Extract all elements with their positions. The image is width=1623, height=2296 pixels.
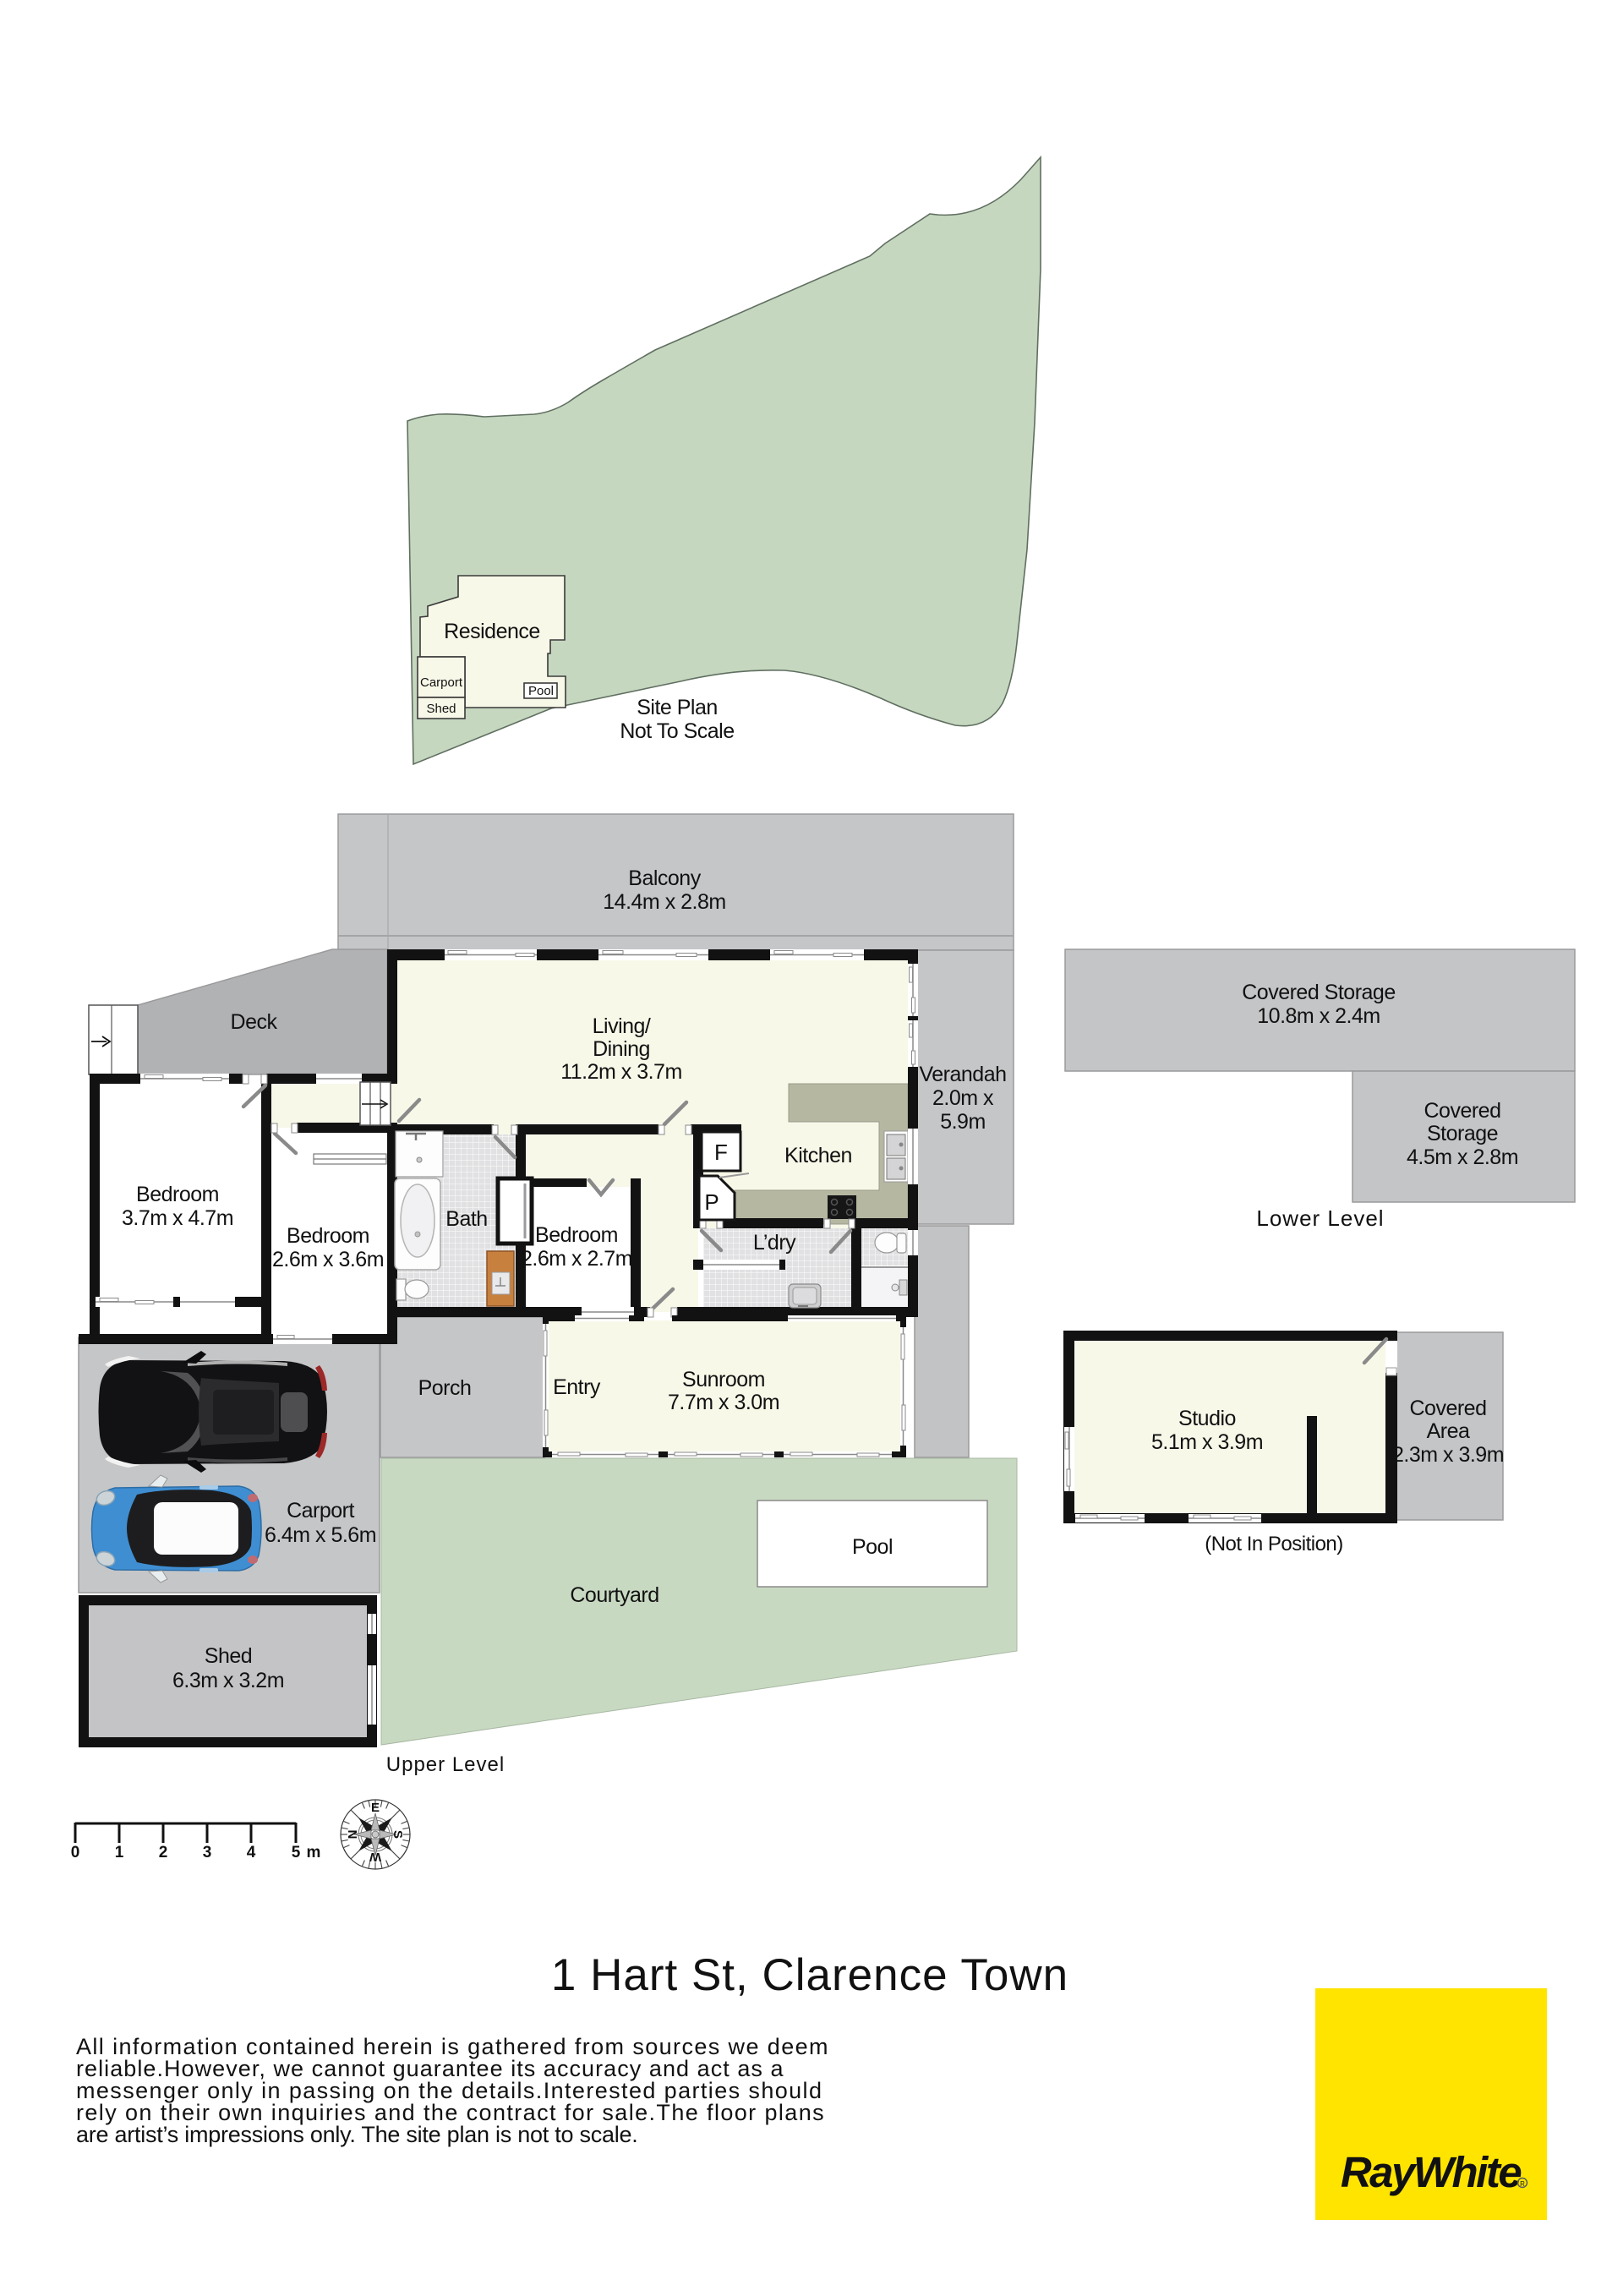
svg-text:E: E [371, 1801, 380, 1815]
svg-text:Storage: Storage [1427, 1122, 1498, 1145]
svg-text:14.4m x 2.8m: 14.4m x 2.8m [603, 890, 725, 914]
svg-text:N: N [346, 1830, 360, 1840]
svg-text:Dining: Dining [593, 1037, 650, 1061]
svg-text:(Not In Position): (Not In Position) [1205, 1533, 1343, 1555]
svg-text:2.0m x: 2.0m x [932, 1086, 994, 1110]
svg-text:Studio: Studio [1178, 1407, 1236, 1430]
svg-text:Sunroom: Sunroom [682, 1368, 765, 1391]
svg-text:2.6m x 3.6m: 2.6m x 3.6m [272, 1248, 384, 1271]
svg-text:Bedroom: Bedroom [287, 1224, 369, 1248]
svg-text:Carport: Carport [287, 1499, 354, 1522]
svg-text:Shed: Shed [205, 1644, 252, 1668]
svg-text:1: 1 [115, 1844, 124, 1861]
svg-text:5.9m: 5.9m [940, 1110, 986, 1134]
svg-text:F: F [714, 1140, 728, 1165]
svg-text:Pool: Pool [528, 684, 554, 698]
svg-text:Courtyard: Courtyard [570, 1583, 658, 1607]
svg-text:RayWhite: RayWhite [1341, 2148, 1522, 2196]
svg-text:0: 0 [71, 1844, 80, 1861]
svg-text:Porch: Porch [418, 1376, 472, 1400]
svg-text:Bedroom: Bedroom [136, 1183, 219, 1206]
svg-text:Bedroom: Bedroom [535, 1223, 618, 1247]
svg-text:3: 3 [203, 1844, 212, 1861]
svg-text:5: 5 [292, 1844, 301, 1861]
svg-text:Shed: Shed [426, 702, 456, 716]
svg-text:Bath: Bath [445, 1207, 487, 1231]
svg-text:L’dry: L’dry [753, 1231, 796, 1255]
svg-text:Balcony: Balcony [628, 866, 701, 890]
svg-text:m: m [307, 1844, 321, 1861]
svg-text:4: 4 [247, 1844, 256, 1861]
svg-text:2.3m x 3.9m: 2.3m x 3.9m [1392, 1443, 1504, 1467]
svg-text:Upper Level: Upper Level [386, 1753, 505, 1776]
svg-text:Entry: Entry [553, 1375, 601, 1399]
svg-text:11.2m x 3.7m: 11.2m x 3.7m [560, 1060, 682, 1084]
svg-text:Kitchen: Kitchen [784, 1144, 852, 1167]
svg-text:Not To Scale: Not To Scale [620, 719, 734, 743]
svg-text:Pool: Pool [852, 1535, 893, 1559]
svg-text:2.6m x 2.7m: 2.6m x 2.7m [521, 1247, 632, 1271]
svg-text:Area: Area [1427, 1419, 1470, 1443]
svg-text:Carport: Carport [420, 675, 463, 690]
svg-text:2: 2 [159, 1844, 168, 1861]
svg-text:Residence: Residence [444, 620, 540, 643]
svg-text:Lower Level: Lower Level [1256, 1205, 1384, 1231]
svg-text:Site Plan: Site Plan [637, 696, 718, 719]
svg-text:P: P [704, 1189, 719, 1215]
svg-text:Verandah: Verandah [919, 1063, 1006, 1086]
svg-text:10.8m x 2.4m: 10.8m x 2.4m [1257, 1004, 1380, 1028]
svg-text:6.4m x 5.6m: 6.4m x 5.6m [265, 1523, 376, 1547]
svg-text:Covered: Covered [1410, 1397, 1487, 1420]
svg-text:1 Hart St, Clarence Town: 1 Hart St, Clarence Town [551, 1950, 1068, 2000]
svg-text:S: S [391, 1830, 405, 1839]
svg-text:W: W [369, 1850, 381, 1864]
svg-text:Covered Storage: Covered Storage [1242, 981, 1396, 1004]
svg-text:6.3m x 3.2m: 6.3m x 3.2m [172, 1669, 284, 1692]
svg-text:4.5m x 2.8m: 4.5m x 2.8m [1407, 1145, 1518, 1169]
svg-text:Deck: Deck [231, 1010, 278, 1034]
svg-text:are artist’s impressions only.: are artist’s impressions only. The site … [76, 2122, 638, 2147]
svg-text:7.7m x 3.0m: 7.7m x 3.0m [668, 1391, 779, 1414]
svg-text:R: R [1520, 2180, 1525, 2188]
svg-text:Living/: Living/ [593, 1014, 651, 1038]
svg-text:3.7m x 4.7m: 3.7m x 4.7m [122, 1206, 233, 1230]
svg-text:5.1m x 3.9m: 5.1m x 3.9m [1151, 1430, 1263, 1454]
svg-text:Covered: Covered [1424, 1099, 1501, 1123]
